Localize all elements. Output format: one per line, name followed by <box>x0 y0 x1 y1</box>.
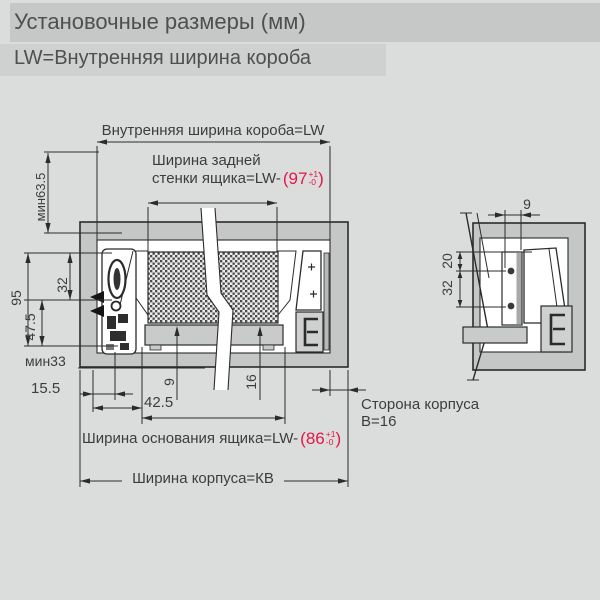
side-dim-label-32: 32 <box>439 276 455 300</box>
body-side-line1: Сторона корпуса <box>361 396 479 413</box>
bottom-tab-left <box>150 345 161 350</box>
tolerance-minus: -0 <box>326 438 336 446</box>
dim-label-base-width: Ширина основания ящика=LW- (86 +1 -0 ) <box>82 430 341 447</box>
dim-label-32: 32 <box>54 272 70 298</box>
tolerance-86-stack: +1 -0 <box>326 430 336 446</box>
dim-label-back-wall-line2: стенки ящика=LW- (97 +1 -0 ) <box>152 170 324 187</box>
technical-drawing-page: Установочные размеры (мм) LW=Внутренняя … <box>0 0 600 600</box>
dim-label-body-width: Ширина корпуса=КВ <box>124 470 282 487</box>
screw-hole-icon <box>508 303 515 310</box>
tolerance-86-close: ) <box>335 430 341 447</box>
body-side-label: Сторона корпуса В=16 <box>361 396 479 430</box>
side-dim-label-9: 9 <box>517 196 537 212</box>
dim-label-47-5: 47.5 <box>22 307 38 347</box>
drawing-canvas <box>0 0 600 600</box>
dim-label-min33: мин33 <box>25 353 66 369</box>
tolerance-minus: -0 <box>308 178 318 186</box>
right-bracket <box>296 251 329 352</box>
dim-label-inner-width: Внутренняя ширина короба=LW <box>95 122 331 139</box>
tolerance-97-close: ) <box>318 170 324 187</box>
dim-label-9: 9 <box>161 374 177 390</box>
body-side-line2: В=16 <box>361 413 479 430</box>
dim-label-42-5: 42.5 <box>144 394 173 411</box>
tolerance-97-stack: +1 -0 <box>308 170 318 186</box>
base-width-text: Ширина основания ящика=LW- <box>82 430 298 447</box>
side-section-view <box>456 210 585 380</box>
dim-label-16: 16 <box>243 371 259 393</box>
screw-hole-icon <box>508 268 515 275</box>
dim-label-back-wall-line1: Ширина задней <box>152 152 261 169</box>
bottom-panel-section <box>463 327 527 343</box>
back-wall-text: стенки ящика=LW- <box>152 170 281 187</box>
tolerance-86-open: (86 <box>300 430 325 447</box>
bottom-tab-right <box>263 345 274 350</box>
tolerance-97-open: (97 <box>283 170 308 187</box>
dim-label-15-5: 15.5 <box>31 380 60 397</box>
dim-label-min63-5: мин63.5 <box>33 165 49 229</box>
side-dim-label-20: 20 <box>439 249 455 273</box>
